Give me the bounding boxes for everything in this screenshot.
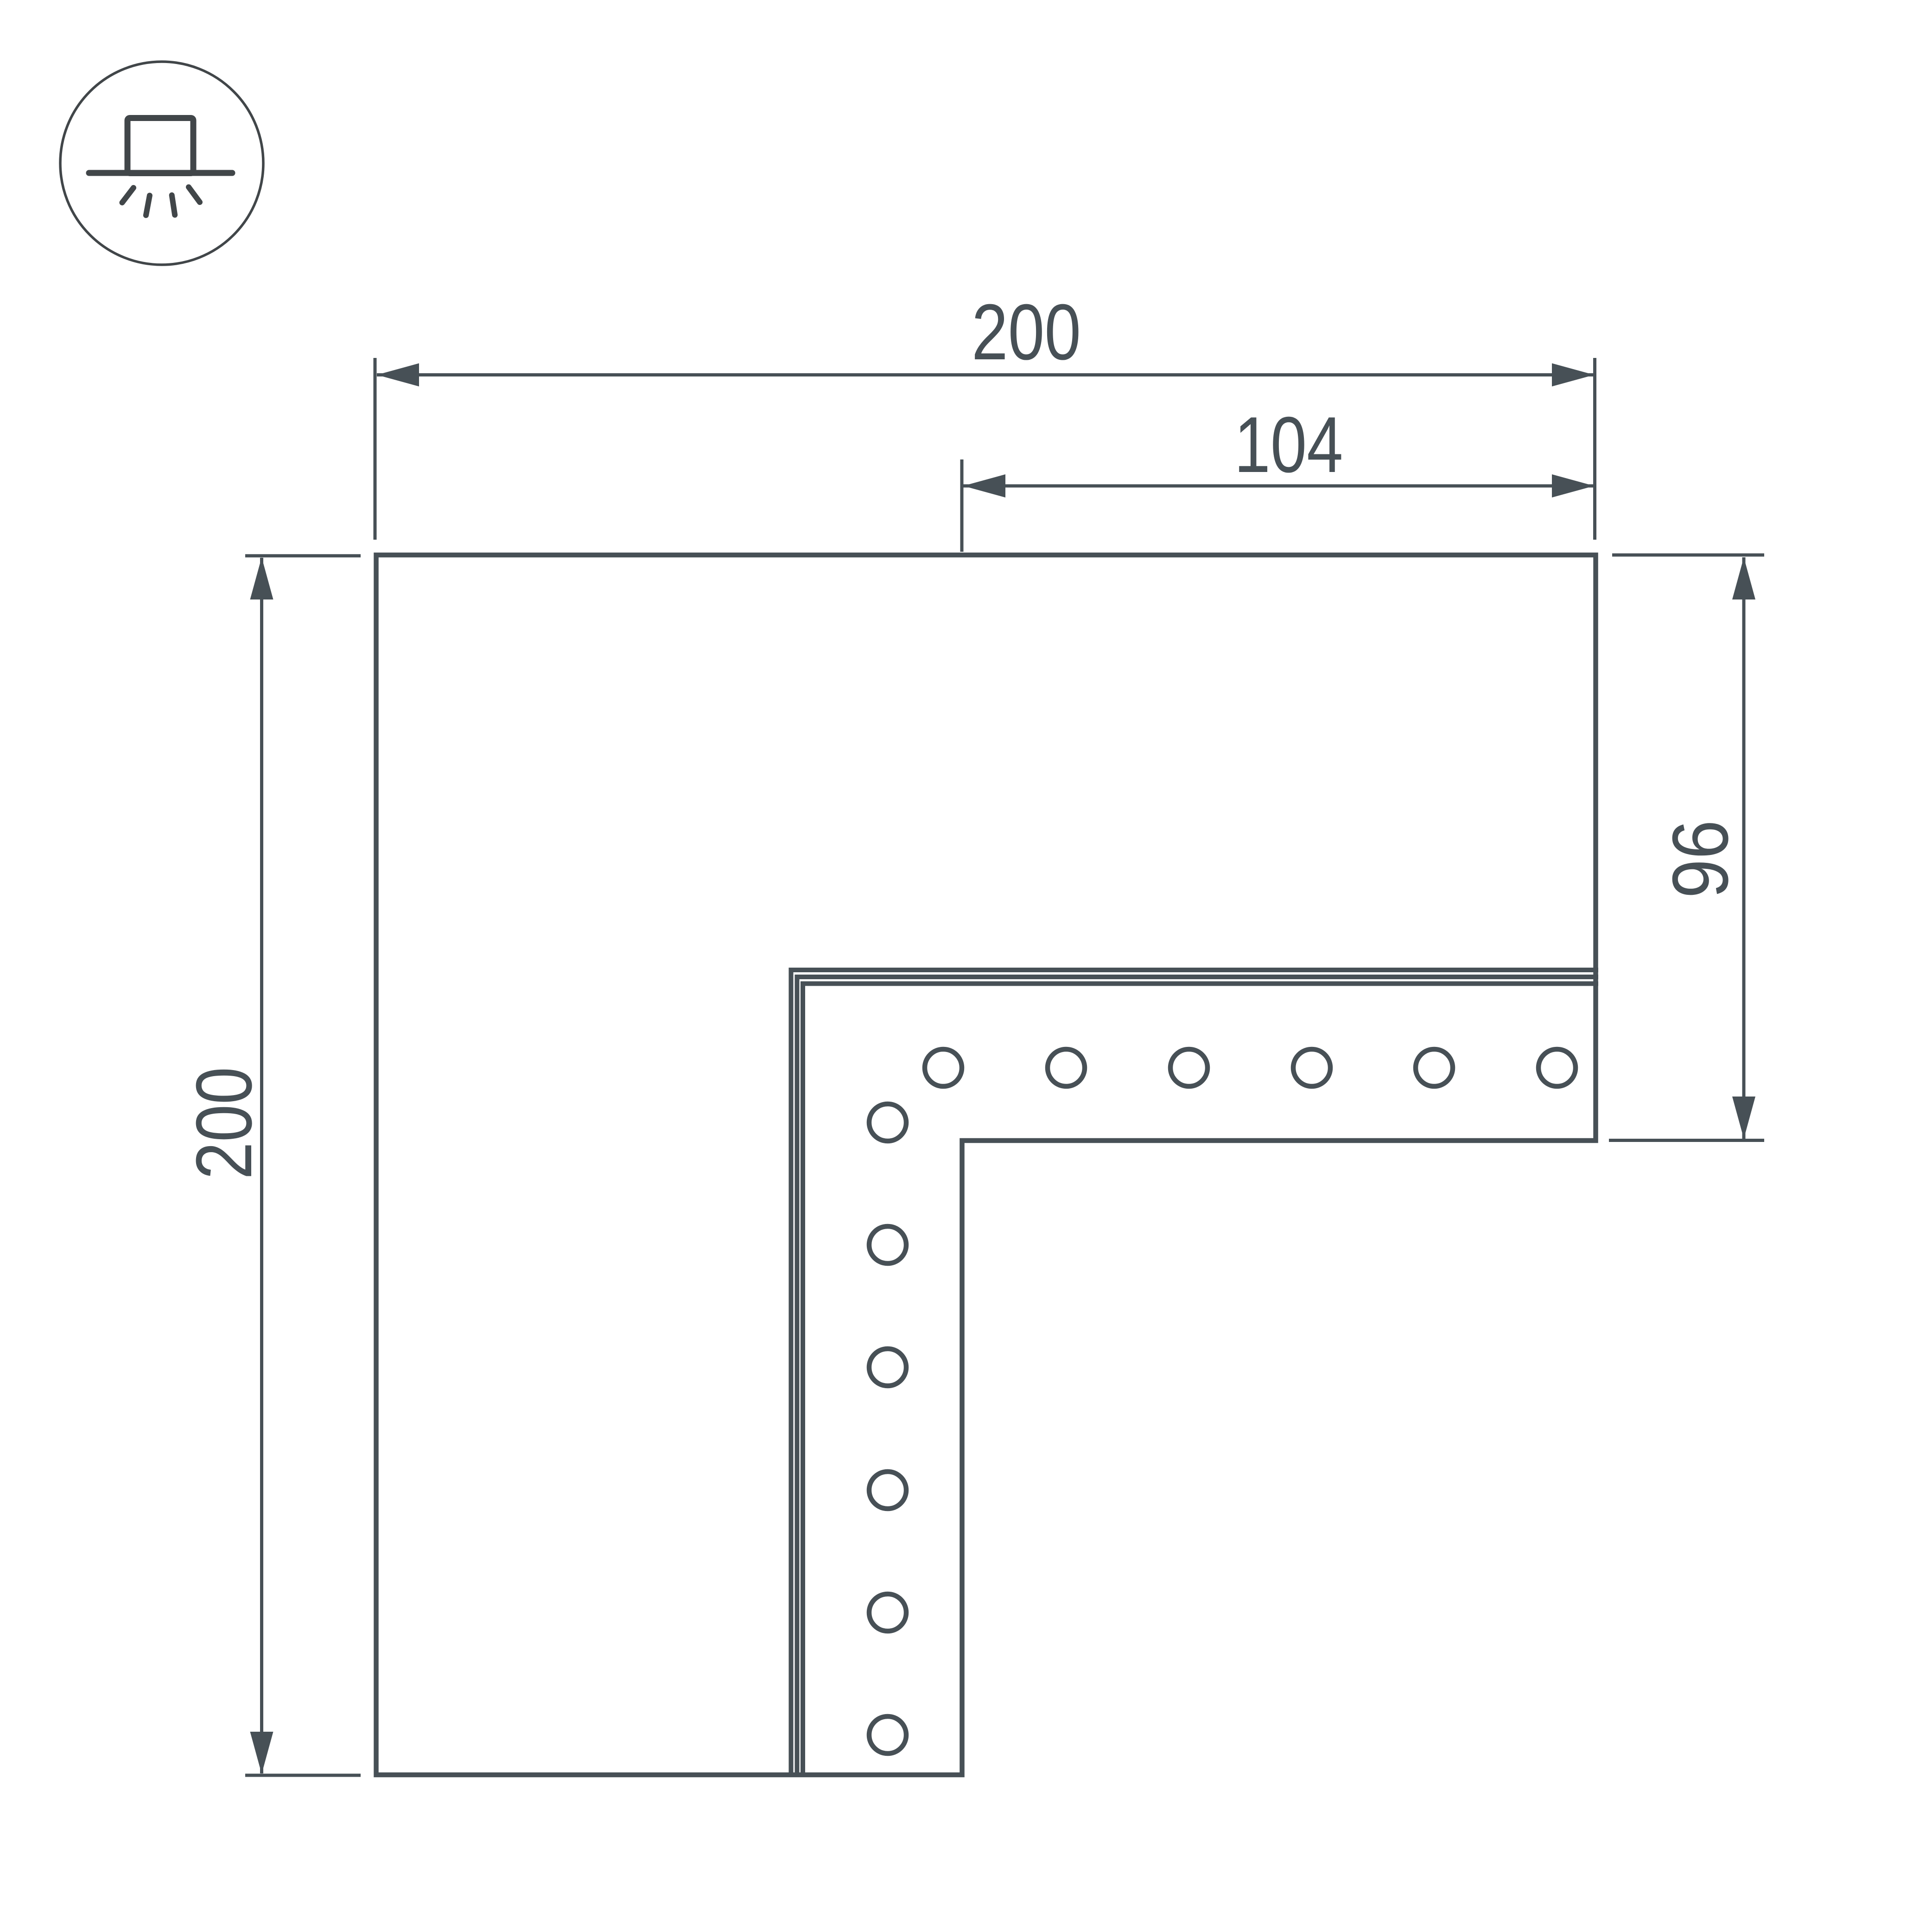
svg-text:200: 200 [180,1067,268,1180]
svg-text:96: 96 [1656,820,1745,899]
svg-text:200: 200 [972,288,1081,376]
svg-text:104: 104 [1234,401,1343,489]
